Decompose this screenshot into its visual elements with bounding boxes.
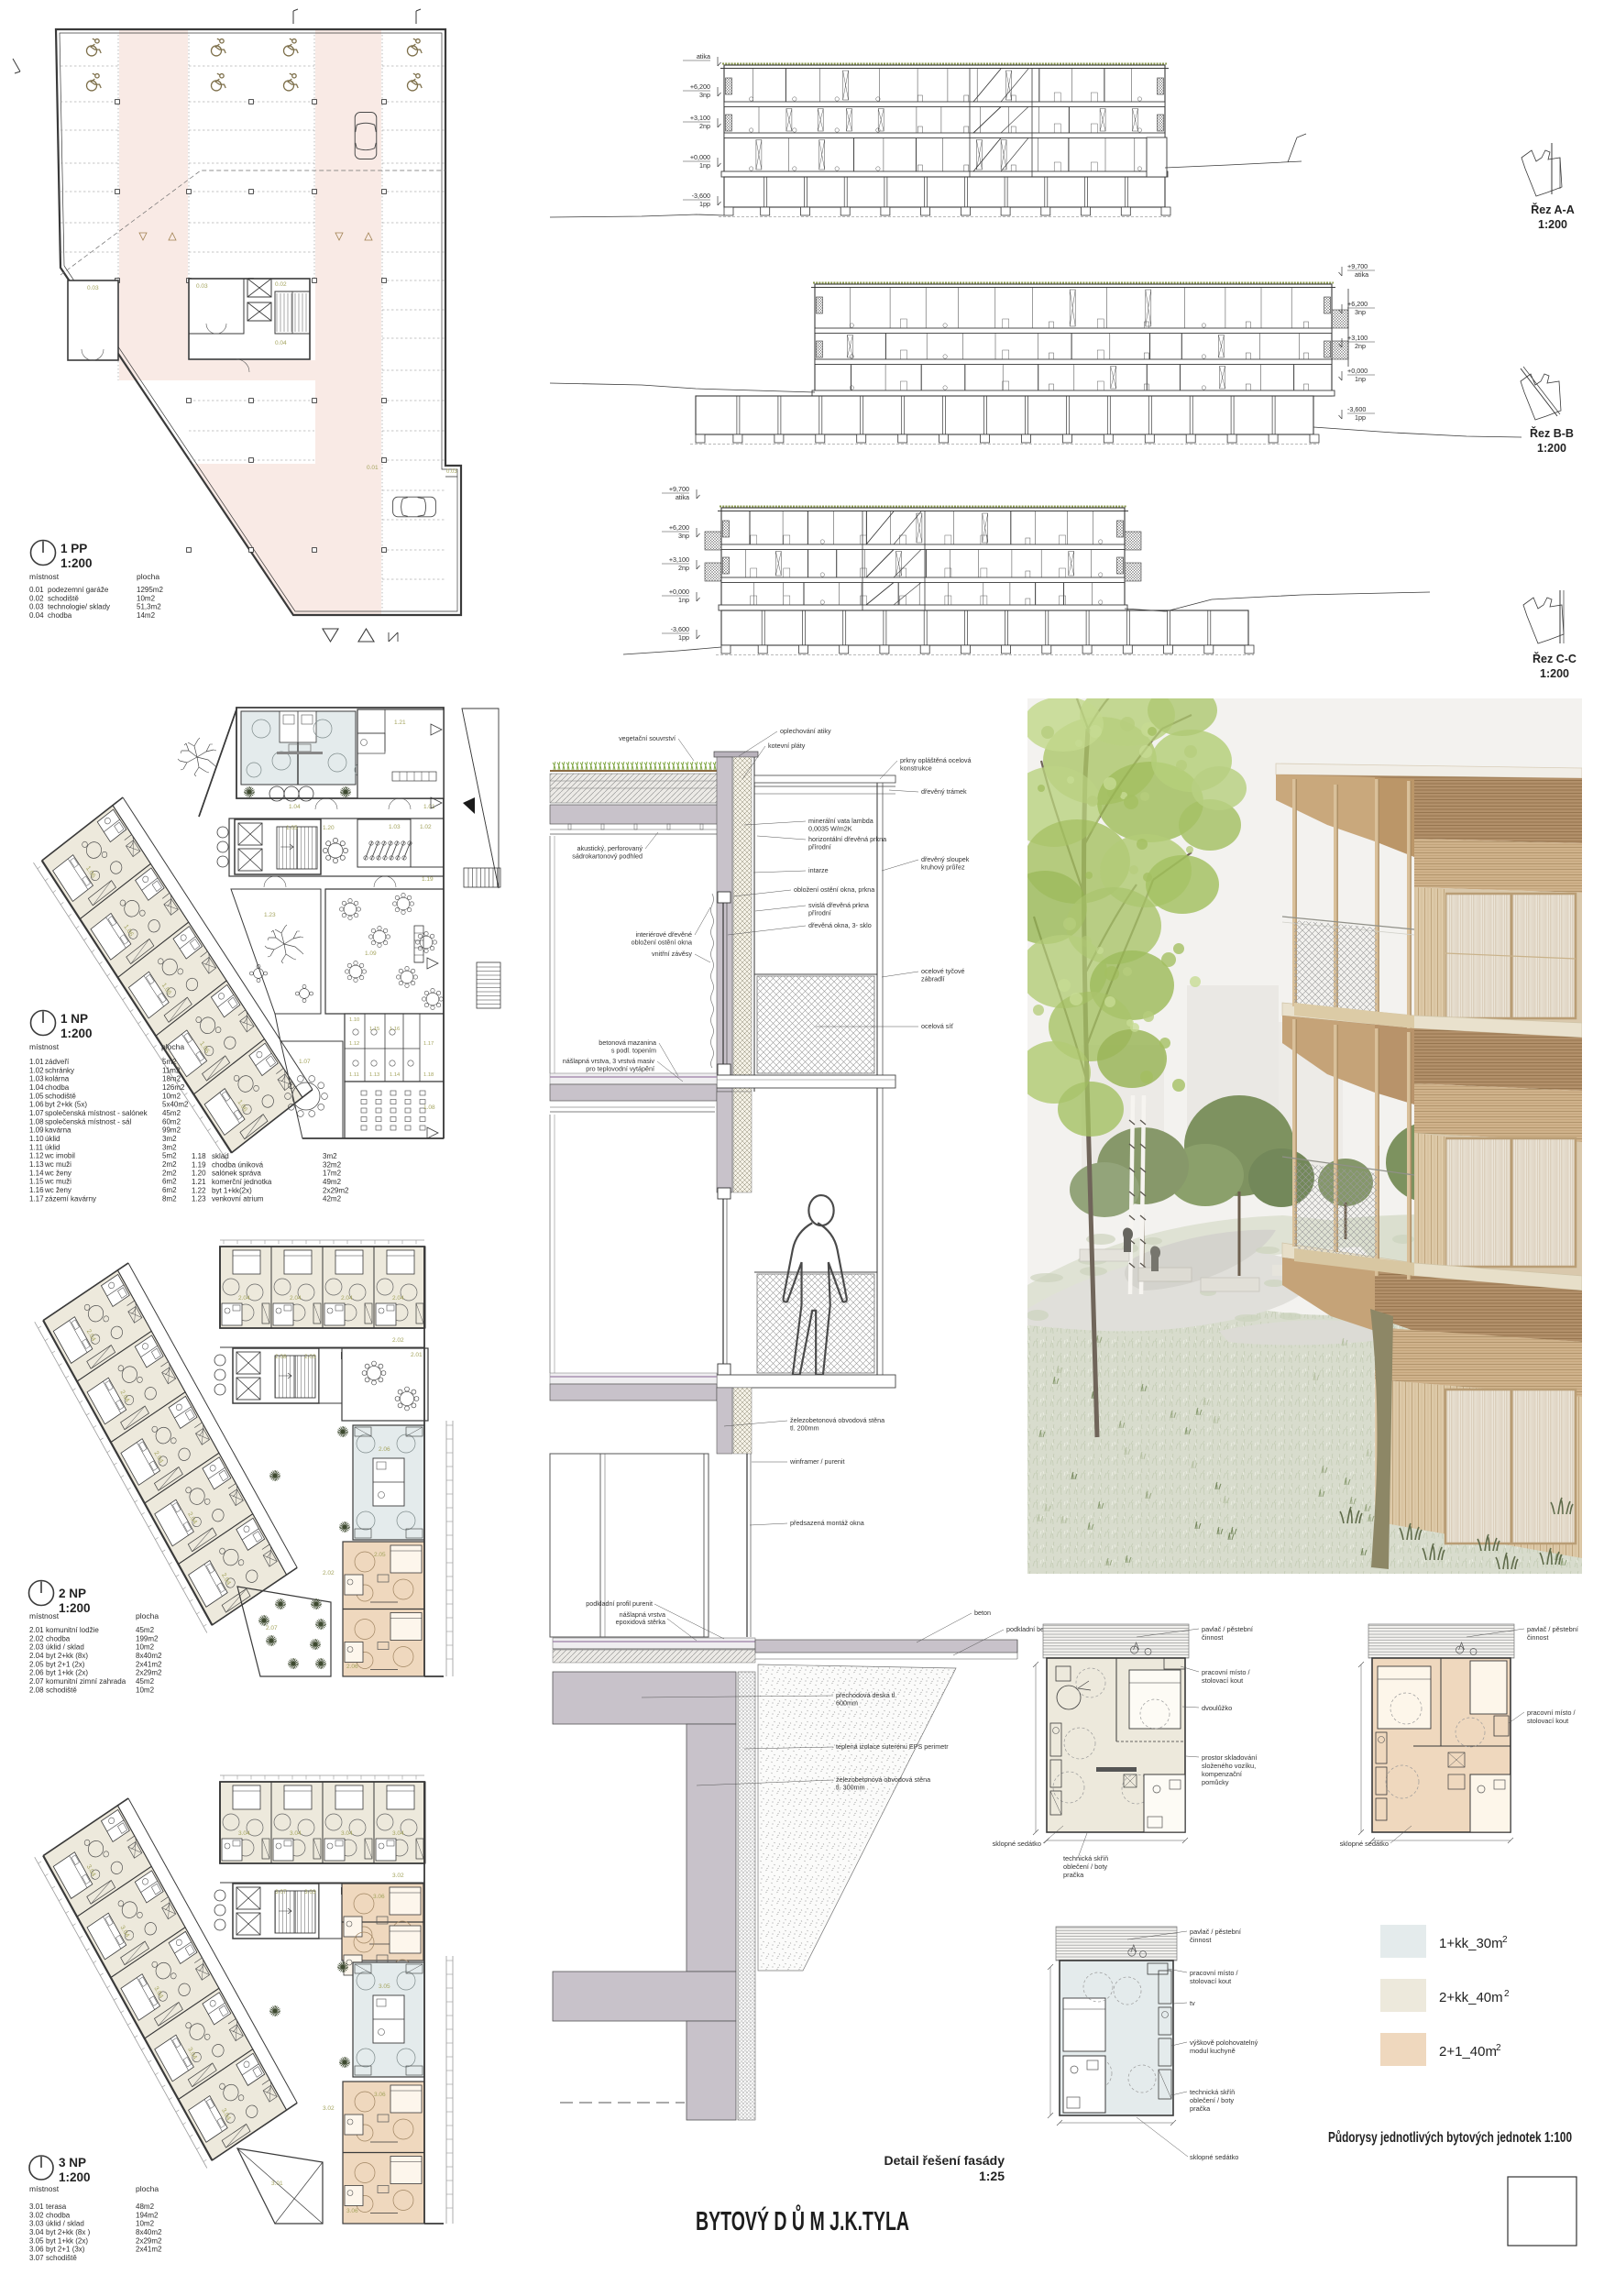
svg-text:pavlač / pěstební: pavlač / pěstební xyxy=(1190,1928,1242,1936)
svg-text:1.19: 1.19 xyxy=(192,1160,206,1169)
svg-text:2x41m2: 2x41m2 xyxy=(136,2246,162,2254)
svg-text:1.13: 1.13 xyxy=(369,1072,379,1078)
svg-text:3.02: 3.02 xyxy=(323,2105,335,2112)
svg-text:49m2: 49m2 xyxy=(323,1178,342,1186)
svg-text:60m2: 60m2 xyxy=(162,1117,181,1126)
svg-text:-3,600: -3,600 xyxy=(1347,405,1366,413)
svg-text:úklid / sklad: úklid / sklad xyxy=(46,2220,84,2228)
svg-text:intarze: intarze xyxy=(808,866,829,874)
svg-text:sklad: sklad xyxy=(212,1152,229,1160)
svg-text:1.11: 1.11 xyxy=(29,1143,44,1151)
svg-text:1.16: 1.16 xyxy=(29,1186,44,1194)
svg-text:42m2: 42m2 xyxy=(323,1195,342,1203)
svg-text:vnitřní závěsy: vnitřní závěsy xyxy=(652,950,692,958)
svg-text:2.07: 2.07 xyxy=(29,1677,44,1686)
svg-text:+9,700: +9,700 xyxy=(669,485,689,493)
svg-text:2m2: 2m2 xyxy=(162,1169,177,1177)
svg-text:s podl. topením: s podl. topením xyxy=(611,1047,656,1055)
svg-text:úklid: úklid xyxy=(45,1143,60,1151)
svg-text:2x41m2: 2x41m2 xyxy=(136,1660,162,1668)
svg-text:+6,200: +6,200 xyxy=(1347,300,1368,308)
svg-text:+0,000: +0,000 xyxy=(669,588,689,596)
svg-text:5m2: 5m2 xyxy=(162,1058,177,1066)
svg-text:+0,000: +0,000 xyxy=(690,153,710,161)
svg-text:1.21: 1.21 xyxy=(394,720,406,726)
svg-text:600mm: 600mm xyxy=(836,1699,858,1708)
svg-text:byt 2+kk (8x ): byt 2+kk (8x ) xyxy=(46,2228,91,2236)
svg-text:1.08: 1.08 xyxy=(29,1117,44,1126)
svg-text:wc imobil: wc imobil xyxy=(44,1152,75,1160)
svg-text:1.19: 1.19 xyxy=(422,876,434,883)
svg-text:32m2: 32m2 xyxy=(323,1160,342,1169)
svg-text:0.04: 0.04 xyxy=(275,340,287,346)
svg-text:Řez B-B: Řez B-B xyxy=(1530,426,1574,440)
svg-text:3.04: 3.04 xyxy=(290,1830,302,1837)
svg-text:3.05: 3.05 xyxy=(29,2236,44,2245)
svg-text:stolovací kout: stolovací kout xyxy=(1190,1977,1231,1985)
svg-text:0.02: 0.02 xyxy=(29,594,44,602)
svg-text:10m2: 10m2 xyxy=(136,1686,155,1694)
svg-text:+6,200: +6,200 xyxy=(669,523,689,532)
svg-text:-3,600: -3,600 xyxy=(692,192,710,200)
svg-text:3m2: 3m2 xyxy=(162,1135,177,1143)
svg-text:3.07: 3.07 xyxy=(275,1889,287,1895)
svg-text:společenská místnost - sál: společenská místnost - sál xyxy=(45,1117,131,1126)
svg-text:obložení ostění okna: obložení ostění okna xyxy=(632,939,692,947)
svg-text:kotevní pláty: kotevní pláty xyxy=(768,742,806,750)
svg-text:3np: 3np xyxy=(1355,308,1366,316)
svg-text:1.03: 1.03 xyxy=(389,824,401,830)
svg-text:Detail řešení fasády: Detail řešení fasády xyxy=(884,2153,1005,2168)
svg-text:byt 2+kk (8x): byt 2+kk (8x) xyxy=(46,1652,88,1660)
svg-text:0,0035 W/m2K: 0,0035 W/m2K xyxy=(808,825,852,833)
svg-text:0.01: 0.01 xyxy=(29,586,44,594)
svg-text:1.09: 1.09 xyxy=(29,1126,44,1135)
svg-text:oblečení / boty: oblečení / boty xyxy=(1063,1862,1107,1871)
svg-text:2: 2 xyxy=(1496,2043,1501,2053)
svg-text:48m2: 48m2 xyxy=(136,2203,155,2211)
svg-text:0.03: 0.03 xyxy=(29,603,44,611)
svg-text:1.17: 1.17 xyxy=(423,1041,434,1047)
svg-text:sklopné sedátko: sklopné sedátko xyxy=(993,1840,1041,1848)
svg-text:3m2: 3m2 xyxy=(323,1152,337,1160)
svg-text:3.03: 3.03 xyxy=(304,1889,316,1895)
svg-text:pomůcky: pomůcky xyxy=(1202,1778,1229,1786)
svg-text:3np: 3np xyxy=(678,532,689,540)
svg-text:+3,100: +3,100 xyxy=(690,114,710,122)
svg-text:8m2: 8m2 xyxy=(162,1194,177,1203)
svg-text:chodba: chodba xyxy=(48,611,72,620)
svg-text:6m2: 6m2 xyxy=(162,1178,177,1186)
svg-text:1np: 1np xyxy=(678,596,689,604)
svg-text:2np: 2np xyxy=(699,122,710,130)
svg-text:0.03: 0.03 xyxy=(446,469,457,475)
svg-text:schodiště: schodiště xyxy=(46,1686,77,1694)
svg-text:2x29m2: 2x29m2 xyxy=(323,1186,349,1194)
svg-text:2: 2 xyxy=(1502,1935,1508,1945)
svg-text:2.04: 2.04 xyxy=(29,1652,44,1660)
svg-text:sklopné sedátko: sklopné sedátko xyxy=(1190,2153,1238,2161)
svg-text:3.04: 3.04 xyxy=(341,1830,353,1837)
svg-text:výškově polohovatelný: výškově polohovatelný xyxy=(1190,2038,1258,2047)
svg-text:pavlač / pěstební: pavlač / pěstební xyxy=(1202,1625,1254,1633)
svg-text:pavlač / pěstební: pavlač / pěstební xyxy=(1527,1625,1579,1633)
svg-text:3.07: 3.07 xyxy=(29,2254,44,2262)
svg-text:2.04: 2.04 xyxy=(238,1295,250,1302)
svg-text:schodiště: schodiště xyxy=(45,1092,76,1100)
svg-text:3.05: 3.05 xyxy=(379,1983,390,1990)
svg-text:zázemí kavárny: zázemí kavárny xyxy=(45,1194,96,1203)
svg-text:1.04: 1.04 xyxy=(289,804,301,810)
svg-text:kruhový průřez: kruhový průřez xyxy=(921,863,965,872)
svg-text:pro teplovodní vytápění: pro teplovodní vytápění xyxy=(586,1065,654,1073)
svg-text:1.04: 1.04 xyxy=(29,1083,44,1092)
svg-text:prostor skladování: prostor skladování xyxy=(1202,1753,1258,1762)
svg-text:1.18: 1.18 xyxy=(423,1072,434,1078)
svg-text:1.07: 1.07 xyxy=(299,1059,311,1065)
svg-text:pračka: pračka xyxy=(1190,2104,1211,2113)
svg-text:2.05: 2.05 xyxy=(374,1552,386,1558)
svg-text:5x40m2: 5x40m2 xyxy=(162,1101,189,1109)
svg-text:podkladní profil purenit: podkladní profil purenit xyxy=(586,1599,653,1608)
svg-text:atika: atika xyxy=(1355,270,1368,279)
svg-text:úklid: úklid xyxy=(45,1135,60,1143)
svg-text:10m2: 10m2 xyxy=(136,1643,155,1652)
svg-text:komerční jednotka: komerční jednotka xyxy=(212,1178,272,1186)
svg-text:3np: 3np xyxy=(699,91,710,99)
svg-text:1.07: 1.07 xyxy=(29,1109,44,1117)
svg-text:1:200: 1:200 xyxy=(60,556,93,570)
svg-text:2+kk_40m: 2+kk_40m xyxy=(1439,1990,1503,2005)
svg-text:sádrokartonový podhled: sádrokartonový podhled xyxy=(572,852,643,861)
svg-text:1.22: 1.22 xyxy=(192,1186,206,1194)
svg-text:3.06: 3.06 xyxy=(29,2246,44,2254)
svg-text:3.01: 3.01 xyxy=(271,2181,283,2187)
svg-text:přírodní: přírodní xyxy=(808,909,831,917)
svg-text:2.02: 2.02 xyxy=(29,1634,44,1642)
svg-text:3.04: 3.04 xyxy=(29,2228,44,2236)
svg-text:2.01: 2.01 xyxy=(411,1352,423,1358)
svg-text:úklid / sklad: úklid / sklad xyxy=(46,1643,84,1652)
svg-text:technická skříň: technická skříň xyxy=(1190,2088,1235,2096)
svg-text:0.04: 0.04 xyxy=(29,611,44,620)
svg-text:1.23: 1.23 xyxy=(192,1195,206,1203)
svg-text:+3,100: +3,100 xyxy=(1347,334,1368,342)
svg-text:2.04: 2.04 xyxy=(341,1295,353,1302)
svg-text:komunitní lodžie: komunitní lodžie xyxy=(46,1626,99,1634)
svg-text:atika: atika xyxy=(676,493,689,501)
svg-text:+6,200: +6,200 xyxy=(690,82,710,91)
svg-text:126m2: 126m2 xyxy=(162,1083,185,1092)
svg-text:1.08: 1.08 xyxy=(423,1104,435,1111)
svg-text:14m2: 14m2 xyxy=(137,611,156,620)
svg-text:chodba: chodba xyxy=(46,2211,71,2219)
svg-text:1.10: 1.10 xyxy=(349,1017,359,1023)
svg-text:Půdorysy jednotlivých bytových: Půdorysy jednotlivých bytových jednotek … xyxy=(1328,2130,1572,2146)
svg-text:2.06: 2.06 xyxy=(379,1446,390,1453)
svg-text:1.13: 1.13 xyxy=(29,1160,44,1169)
svg-text:činnost: činnost xyxy=(1190,1936,1211,1944)
svg-text:1:200: 1:200 xyxy=(1538,218,1567,231)
svg-text:45m2: 45m2 xyxy=(136,1626,155,1634)
svg-text:194m2: 194m2 xyxy=(136,2211,159,2219)
svg-text:2+1_40m: 2+1_40m xyxy=(1439,2044,1497,2060)
svg-text:terasa: terasa xyxy=(46,2203,67,2211)
svg-text:2.08: 2.08 xyxy=(29,1686,44,1694)
svg-text:2.04: 2.04 xyxy=(392,1295,404,1302)
svg-text:10m2: 10m2 xyxy=(162,1092,181,1100)
svg-text:3.04: 3.04 xyxy=(238,1830,250,1837)
svg-text:kolárna: kolárna xyxy=(45,1075,70,1083)
svg-text:1.21: 1.21 xyxy=(192,1178,206,1186)
svg-text:1:200: 1:200 xyxy=(60,1027,93,1040)
svg-text:1.02: 1.02 xyxy=(420,824,432,830)
svg-text:2np: 2np xyxy=(1355,342,1366,350)
svg-text:1.18: 1.18 xyxy=(192,1152,206,1160)
svg-text:-3,600: -3,600 xyxy=(671,625,689,633)
svg-text:Řez A-A: Řez A-A xyxy=(1531,203,1574,216)
svg-text:pračka: pračka xyxy=(1063,1871,1084,1879)
svg-text:2np: 2np xyxy=(678,564,689,572)
svg-text:byt 1+kk (2x): byt 1+kk (2x) xyxy=(46,2236,88,2245)
svg-text:2.07: 2.07 xyxy=(266,1625,278,1631)
svg-text:99m2: 99m2 xyxy=(162,1126,181,1135)
svg-text:1:25: 1:25 xyxy=(979,2169,1005,2183)
svg-text:2.05: 2.05 xyxy=(29,1660,44,1668)
svg-text:8x40m2: 8x40m2 xyxy=(136,2228,162,2236)
svg-text:složeného vozíku,: složeného vozíku, xyxy=(1202,1762,1256,1770)
svg-text:schránky: schránky xyxy=(45,1066,74,1074)
svg-text:2.04: 2.04 xyxy=(290,1295,302,1302)
svg-text:kavárna: kavárna xyxy=(45,1126,71,1135)
svg-text:obložení ostění okna, prkna: obložení ostění okna, prkna xyxy=(794,885,874,894)
svg-text:zádveří: zádveří xyxy=(45,1058,70,1066)
svg-text:18m2: 18m2 xyxy=(162,1075,181,1083)
svg-text:místnost: místnost xyxy=(29,1042,60,1051)
svg-text:2.03: 2.03 xyxy=(29,1643,44,1652)
svg-text:tv: tv xyxy=(1190,1999,1195,2007)
svg-text:5m2: 5m2 xyxy=(162,1152,177,1160)
svg-text:schodiště: schodiště xyxy=(48,594,79,602)
svg-text:místnost: místnost xyxy=(29,572,60,581)
svg-text:BYTOVÝ D Ů M J.K.TYLA: BYTOVÝ D Ů M J.K.TYLA xyxy=(696,2203,909,2236)
svg-text:2.06: 2.06 xyxy=(29,1669,44,1677)
svg-text:6m2: 6m2 xyxy=(162,1186,177,1194)
svg-text:plocha: plocha xyxy=(137,572,159,581)
svg-text:3.06: 3.06 xyxy=(374,2092,386,2098)
svg-text:wc ženy: wc ženy xyxy=(44,1169,71,1177)
svg-text:1.12: 1.12 xyxy=(29,1152,44,1160)
svg-text:konstrukce: konstrukce xyxy=(900,764,932,773)
svg-text:technická skříň: technická skříň xyxy=(1063,1854,1108,1862)
svg-text:místnost: místnost xyxy=(29,1611,60,1620)
svg-text:salónek správa: salónek správa xyxy=(212,1170,261,1178)
svg-text:1.12: 1.12 xyxy=(349,1041,359,1047)
svg-text:1:200: 1:200 xyxy=(59,2170,91,2184)
svg-text:1.03: 1.03 xyxy=(29,1075,44,1083)
svg-text:chodba úniková: chodba úniková xyxy=(212,1160,264,1169)
svg-text:3.01: 3.01 xyxy=(29,2203,44,2211)
svg-text:schodiště: schodiště xyxy=(46,2254,77,2262)
svg-text:dvoulůžko: dvoulůžko xyxy=(1202,1704,1232,1712)
svg-text:epoxidová stěrka: epoxidová stěrka xyxy=(616,1618,665,1626)
svg-text:51,3m2: 51,3m2 xyxy=(137,603,161,611)
svg-text:1.11: 1.11 xyxy=(349,1072,359,1078)
svg-text:dřevěný trámek: dřevěný trámek xyxy=(921,787,967,796)
svg-text:+9,700: +9,700 xyxy=(1347,262,1368,270)
svg-text:byt 1+kk (2x): byt 1+kk (2x) xyxy=(46,1669,88,1677)
svg-text:pracovní místo /: pracovní místo / xyxy=(1202,1668,1251,1676)
svg-text:wc muži: wc muži xyxy=(44,1160,71,1169)
svg-text:místnost: místnost xyxy=(29,2184,60,2193)
svg-text:modul kuchyně: modul kuchyně xyxy=(1190,2047,1236,2055)
svg-text:2.03: 2.03 xyxy=(304,1354,316,1360)
svg-text:sklopné sedátko: sklopné sedátko xyxy=(1340,1840,1389,1848)
svg-text:1.09: 1.09 xyxy=(365,950,377,957)
svg-text:3.02: 3.02 xyxy=(29,2211,44,2219)
svg-text:0.03: 0.03 xyxy=(87,285,99,291)
svg-text:oblečení / boty: oblečení / boty xyxy=(1190,2096,1234,2104)
svg-text:1np: 1np xyxy=(1355,375,1366,383)
svg-text:teplená izolace suterénu EPS p: teplená izolace suterénu EPS perimetr xyxy=(836,1742,949,1751)
svg-text:11m2: 11m2 xyxy=(162,1066,181,1074)
svg-text:45m2: 45m2 xyxy=(136,1677,155,1686)
svg-text:10m2: 10m2 xyxy=(136,2220,155,2228)
svg-text:venkovní atrium: venkovní atrium xyxy=(212,1195,264,1203)
svg-text:plocha: plocha xyxy=(136,1611,159,1620)
svg-text:přírodní: přírodní xyxy=(808,843,831,851)
svg-text:společenská místnost - salónek: společenská místnost - salónek xyxy=(45,1109,148,1117)
svg-text:3m2: 3m2 xyxy=(162,1143,177,1151)
svg-text:1.01: 1.01 xyxy=(29,1058,44,1066)
svg-text:ocelová síť: ocelová síť xyxy=(921,1022,953,1030)
svg-text:beton: beton xyxy=(974,1609,991,1617)
svg-text:1.15: 1.15 xyxy=(29,1178,44,1186)
svg-text:zábradlí: zábradlí xyxy=(921,975,945,983)
svg-text:tl. 200mm: tl. 200mm xyxy=(790,1424,819,1433)
svg-text:8x40m2: 8x40m2 xyxy=(136,1652,162,1660)
svg-text:2.06: 2.06 xyxy=(346,1664,358,1670)
svg-text:atika: atika xyxy=(697,52,710,60)
svg-text:wc muži: wc muži xyxy=(44,1178,71,1186)
svg-text:+3,100: +3,100 xyxy=(669,555,689,564)
svg-text:3.06: 3.06 xyxy=(346,2208,358,2214)
svg-text:1+kk_30m: 1+kk_30m xyxy=(1439,1936,1503,1951)
svg-text:1pp: 1pp xyxy=(699,200,710,208)
svg-text:1 NP: 1 NP xyxy=(60,1012,88,1026)
svg-text:1295m2: 1295m2 xyxy=(137,586,163,594)
svg-text:1.14: 1.14 xyxy=(390,1072,401,1078)
svg-text:1.06: 1.06 xyxy=(29,1101,44,1109)
svg-text:10m2: 10m2 xyxy=(137,594,156,602)
svg-text:chodba: chodba xyxy=(46,1634,71,1642)
svg-text:1 PP: 1 PP xyxy=(60,542,87,555)
svg-text:1.20: 1.20 xyxy=(192,1170,206,1178)
svg-text:1.20: 1.20 xyxy=(323,825,335,831)
svg-text:byt 2+1 (3x): byt 2+1 (3x) xyxy=(46,2246,85,2254)
svg-text:3.03: 3.03 xyxy=(29,2220,44,2228)
svg-text:vegetační souvrství: vegetační souvrství xyxy=(619,734,676,742)
svg-text:1.14: 1.14 xyxy=(29,1169,44,1177)
svg-text:byt 1+kk(2x): byt 1+kk(2x) xyxy=(212,1186,252,1194)
svg-text:dřevěná okna, 3- sklo: dřevěná okna, 3- sklo xyxy=(808,921,872,929)
svg-text:0.02: 0.02 xyxy=(275,281,287,288)
svg-text:199m2: 199m2 xyxy=(136,1634,159,1642)
svg-text:1:200: 1:200 xyxy=(1540,667,1569,680)
svg-text:plocha: plocha xyxy=(136,2184,159,2193)
svg-text:předsazená montáž okna: předsazená montáž okna xyxy=(790,1519,864,1527)
svg-text:2x29m2: 2x29m2 xyxy=(136,1669,162,1677)
svg-text:chodba: chodba xyxy=(45,1083,70,1092)
svg-text:pracovní místo /: pracovní místo / xyxy=(1190,1969,1239,1977)
svg-text:byt 2+1 (2x): byt 2+1 (2x) xyxy=(46,1660,85,1668)
svg-text:45m2: 45m2 xyxy=(162,1109,181,1117)
svg-text:1:200: 1:200 xyxy=(1537,442,1566,455)
svg-text:2.02: 2.02 xyxy=(392,1337,404,1344)
svg-text:winframer / purenit: winframer / purenit xyxy=(789,1457,845,1466)
svg-text:3 NP: 3 NP xyxy=(59,2156,86,2170)
svg-text:2: 2 xyxy=(1504,1989,1510,1999)
svg-text:0.03: 0.03 xyxy=(196,283,208,290)
svg-text:1.05: 1.05 xyxy=(29,1092,44,1100)
svg-text:stolovací kout: stolovací kout xyxy=(1202,1676,1243,1685)
svg-text:3.04: 3.04 xyxy=(392,1830,404,1837)
svg-text:2 NP: 2 NP xyxy=(59,1587,86,1600)
svg-text:1.16: 1.16 xyxy=(390,1027,400,1032)
svg-text:1.15: 1.15 xyxy=(369,1027,379,1032)
svg-text:3.06: 3.06 xyxy=(373,1894,385,1900)
svg-text:1.10: 1.10 xyxy=(29,1135,44,1143)
svg-text:1np: 1np xyxy=(699,161,710,170)
svg-text:kompenzační: kompenzační xyxy=(1202,1770,1243,1778)
svg-text:1.02: 1.02 xyxy=(29,1066,44,1074)
svg-text:činnost: činnost xyxy=(1527,1633,1548,1642)
svg-text:oplechování atiky: oplechování atiky xyxy=(780,727,831,735)
svg-text:Řez C-C: Řez C-C xyxy=(1533,652,1577,665)
svg-text:byt 2+kk (5x): byt 2+kk (5x) xyxy=(45,1101,87,1109)
svg-text:pracovní místo /: pracovní místo / xyxy=(1527,1708,1577,1717)
svg-text:0.01: 0.01 xyxy=(367,465,379,471)
svg-text:1.23: 1.23 xyxy=(264,912,276,918)
svg-text:wc ženy: wc ženy xyxy=(44,1186,71,1194)
svg-text:podezemní garáže: podezemní garáže xyxy=(48,586,109,594)
svg-text:stolovací kout: stolovací kout xyxy=(1527,1717,1568,1725)
svg-text:1.05: 1.05 xyxy=(286,825,298,831)
svg-text:1pp: 1pp xyxy=(678,633,689,642)
svg-text:technologie/ sklady: technologie/ sklady xyxy=(48,603,110,611)
svg-text:1pp: 1pp xyxy=(1355,413,1366,422)
svg-text:plocha: plocha xyxy=(161,1042,184,1051)
svg-text:2.01: 2.01 xyxy=(29,1626,44,1634)
svg-text:činnost: činnost xyxy=(1202,1633,1223,1642)
svg-text:komunitní zimní zahrada: komunitní zimní zahrada xyxy=(46,1677,126,1686)
svg-text:1:200: 1:200 xyxy=(59,1601,91,1615)
svg-text:tl. 300mm: tl. 300mm xyxy=(836,1784,865,1792)
svg-text:1.17: 1.17 xyxy=(29,1194,44,1203)
svg-text:3.02: 3.02 xyxy=(392,1873,404,1879)
svg-text:+0,000: +0,000 xyxy=(1347,367,1368,375)
svg-text:2x29m2: 2x29m2 xyxy=(136,2236,162,2245)
svg-text:2.02: 2.02 xyxy=(323,1570,335,1576)
svg-text:17m2: 17m2 xyxy=(323,1170,342,1178)
svg-text:2m2: 2m2 xyxy=(162,1160,177,1169)
svg-text:2.08: 2.08 xyxy=(275,1354,287,1360)
